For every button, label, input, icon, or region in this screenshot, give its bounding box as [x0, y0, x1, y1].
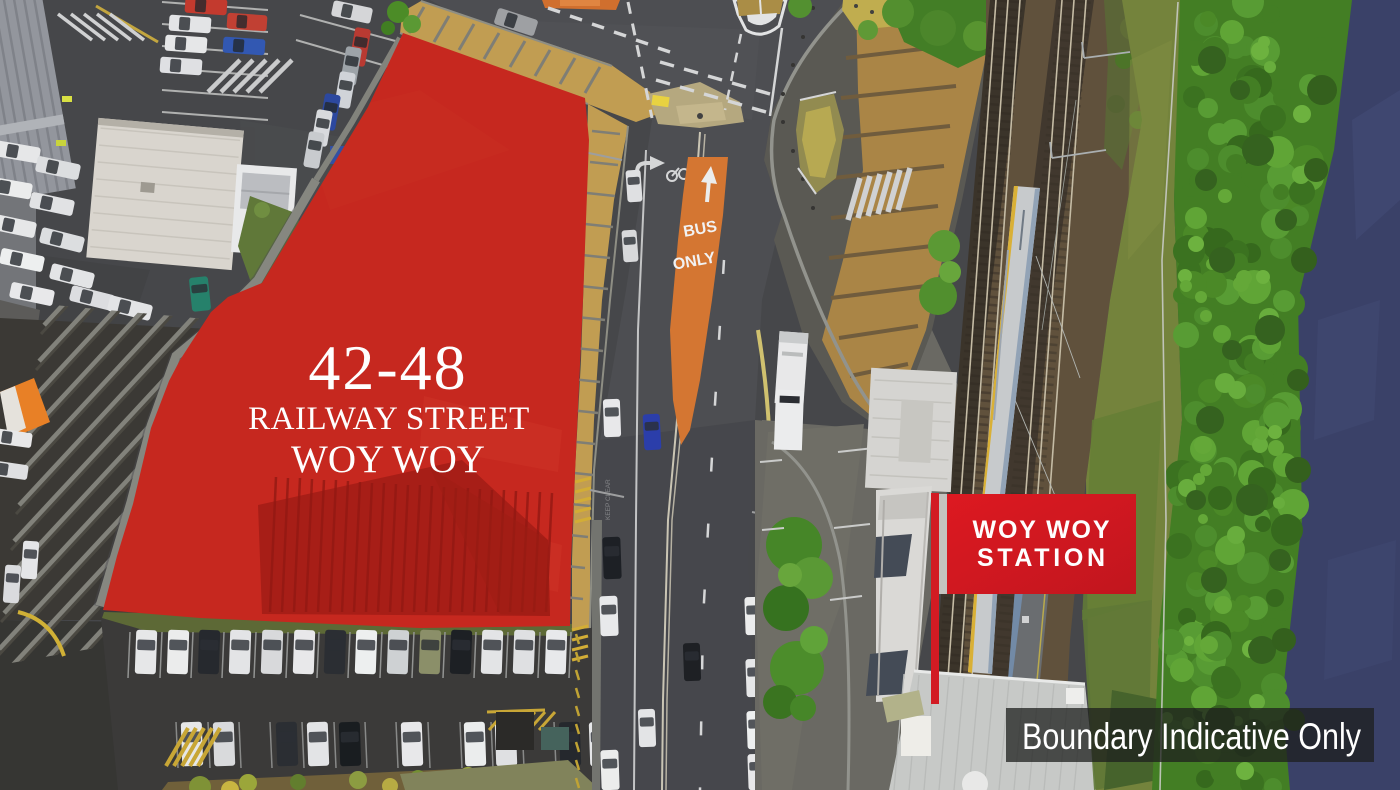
- svg-text:Boundary Indicative Only: Boundary Indicative Only: [1022, 716, 1361, 757]
